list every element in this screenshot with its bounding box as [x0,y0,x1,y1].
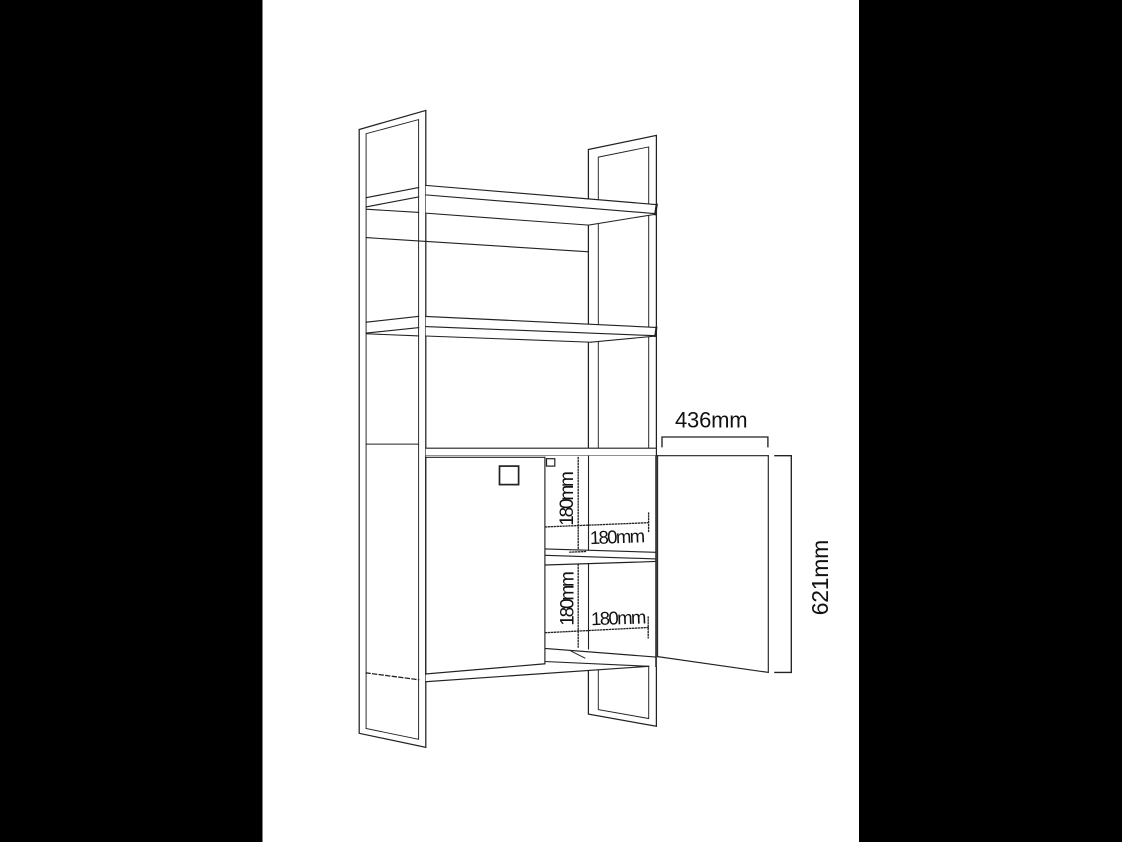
svg-text:436mm: 436mm [675,408,747,433]
svg-text:180mm: 180mm [558,572,579,626]
svg-text:180mm: 180mm [591,606,647,629]
svg-text:180mm: 180mm [589,525,645,548]
svg-text:180mm: 180mm [557,472,578,526]
svg-text:621mm: 621mm [807,540,833,615]
